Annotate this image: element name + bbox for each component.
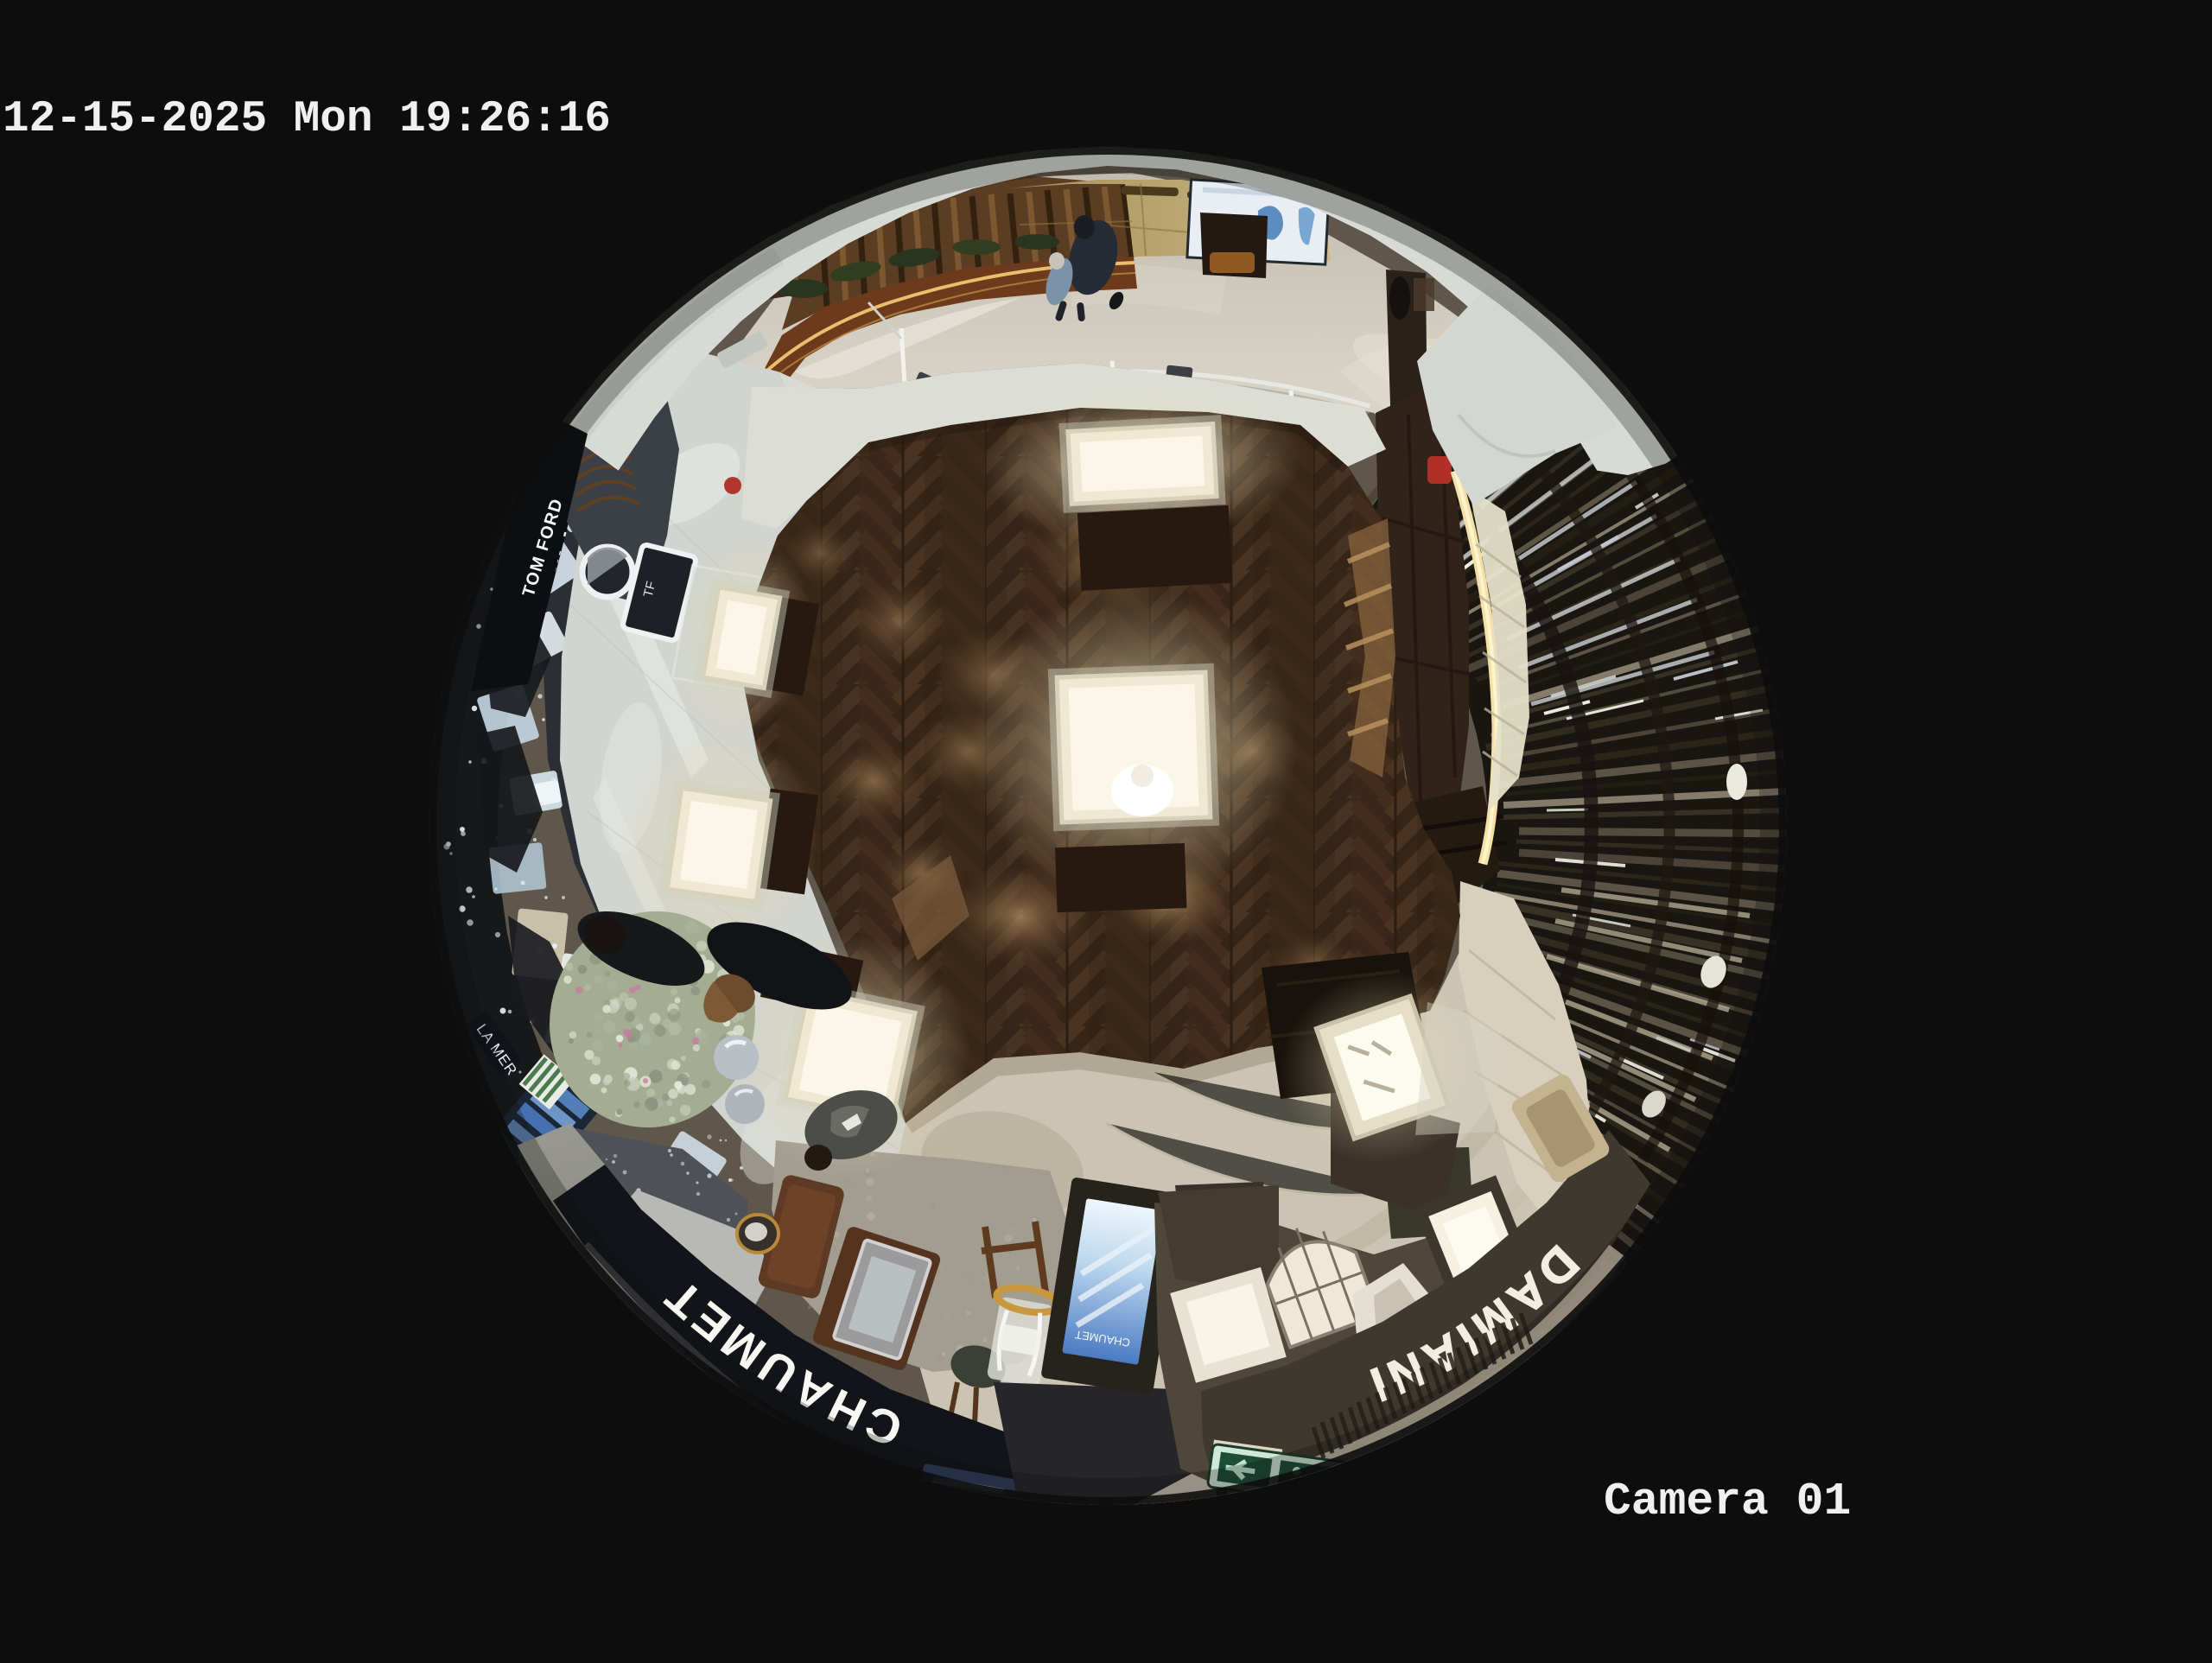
svg-text:12-15-2025 Mon 19:26:16: 12-15-2025 Mon 19:26:16 [3, 95, 611, 144]
svg-text:Camera 01: Camera 01 [1604, 1476, 1851, 1527]
